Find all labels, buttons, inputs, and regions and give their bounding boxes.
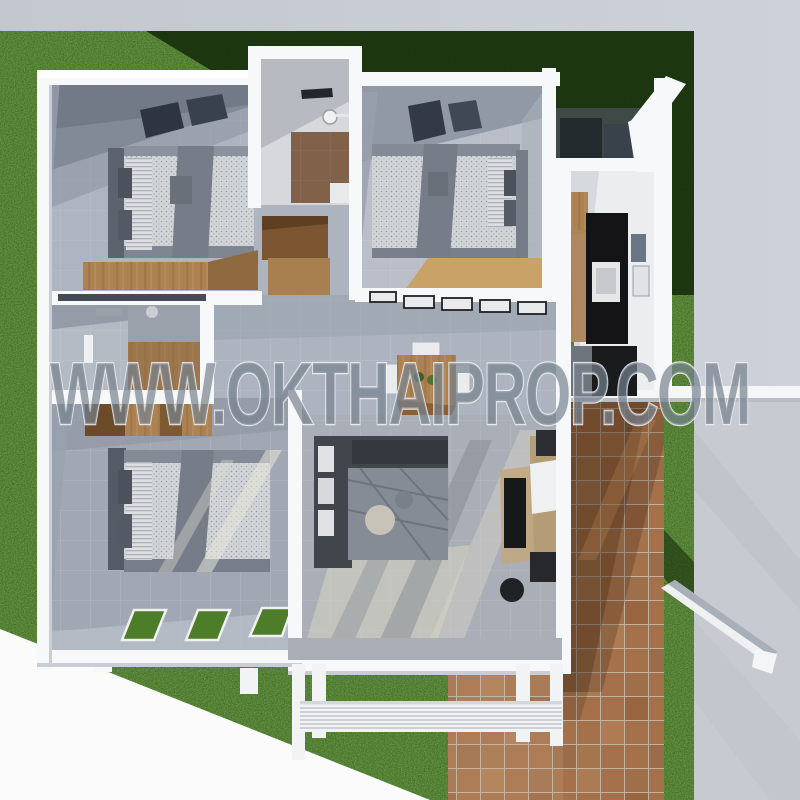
svg-text:WWW.OKTHAIPROP.COM: WWW.OKTHAIPROP.COM: [50, 344, 750, 443]
